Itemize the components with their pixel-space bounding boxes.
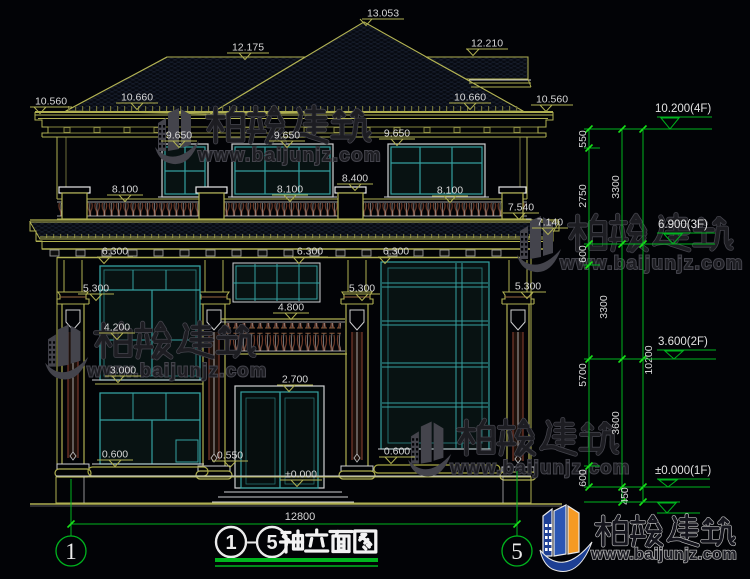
svg-text:13.053: 13.053 [367, 8, 399, 20]
svg-text:1: 1 [65, 539, 77, 564]
svg-text:12.210: 12.210 [471, 38, 503, 50]
svg-text:3600: 3600 [610, 411, 622, 435]
svg-text:6.300: 6.300 [297, 246, 323, 258]
svg-text:7.140: 7.140 [537, 217, 563, 229]
svg-text:0.600: 0.600 [384, 446, 410, 458]
svg-text:7.540: 7.540 [508, 202, 534, 214]
svg-text:10.660: 10.660 [121, 92, 153, 104]
svg-text:10.560: 10.560 [35, 96, 67, 108]
svg-text:8.100: 8.100 [112, 184, 138, 196]
svg-text:10.660: 10.660 [454, 92, 486, 104]
svg-text:10.560: 10.560 [536, 94, 568, 106]
svg-text:2750: 2750 [577, 184, 589, 208]
svg-text:6.900(3F): 6.900(3F) [658, 219, 708, 231]
svg-text:6.300: 6.300 [102, 246, 128, 258]
svg-text:10.200(4F): 10.200(4F) [655, 103, 711, 115]
svg-text:550: 550 [577, 130, 589, 148]
svg-text:3300: 3300 [598, 295, 610, 319]
svg-text:www.baijunjz.com: www.baijunjz.com [449, 457, 630, 477]
svg-text:5.300: 5.300 [83, 283, 109, 295]
svg-text:9.650: 9.650 [166, 130, 192, 142]
svg-text:3300: 3300 [610, 175, 622, 199]
svg-text:4.800: 4.800 [278, 302, 304, 314]
svg-text:6.300: 6.300 [383, 246, 409, 258]
svg-text:1: 1 [225, 532, 236, 554]
svg-text:600: 600 [577, 469, 589, 487]
svg-text:±0.000: ±0.000 [285, 469, 317, 481]
svg-text:±0.000(1F): ±0.000(1F) [655, 465, 711, 477]
svg-text:www.baijunjz.com: www.baijunjz.com [197, 144, 382, 165]
svg-text:5.300: 5.300 [349, 283, 375, 295]
svg-text:10200: 10200 [643, 345, 655, 374]
svg-text:5: 5 [266, 532, 277, 554]
svg-text:2.700: 2.700 [282, 374, 308, 386]
svg-text:9.650: 9.650 [384, 128, 410, 140]
svg-text:4.200: 4.200 [104, 322, 130, 334]
svg-text:8.100: 8.100 [437, 185, 463, 197]
svg-text:12.175: 12.175 [232, 42, 264, 54]
svg-text:0.600: 0.600 [102, 449, 128, 461]
svg-text:5700: 5700 [577, 363, 589, 387]
svg-text:5.300: 5.300 [515, 281, 541, 293]
svg-text:600: 600 [577, 245, 589, 263]
svg-text:www.baijunjz.com: www.baijunjz.com [590, 546, 737, 563]
svg-text:8.400: 8.400 [342, 173, 368, 185]
svg-text:12800: 12800 [285, 511, 316, 523]
svg-text:9.650: 9.650 [274, 130, 300, 142]
svg-text:8.100: 8.100 [277, 184, 303, 196]
svg-text:0.550: 0.550 [217, 450, 243, 462]
svg-text:3.600(2F): 3.600(2F) [658, 336, 708, 348]
svg-text:5: 5 [511, 539, 523, 564]
svg-text:3.000: 3.000 [110, 365, 136, 377]
